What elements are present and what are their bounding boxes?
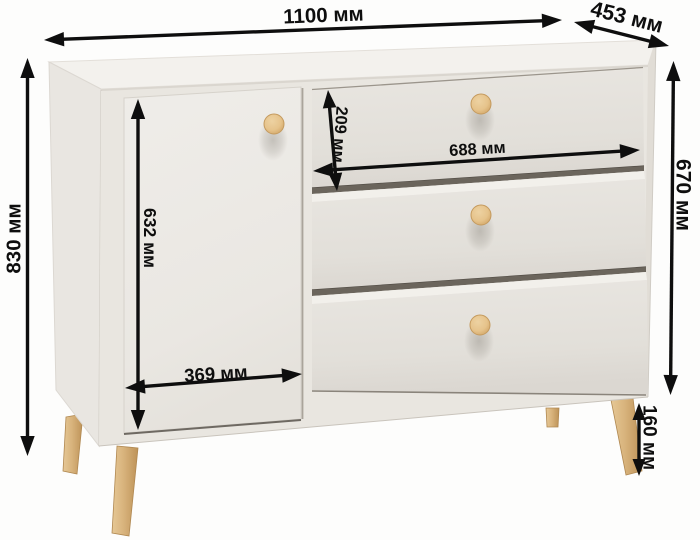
svg-text:160 мм: 160 мм <box>638 405 659 470</box>
svg-text:632 мм: 632 мм <box>140 208 160 268</box>
svg-text:830 мм: 830 мм <box>2 203 25 273</box>
svg-text:369 мм: 369 мм <box>184 361 249 386</box>
svg-text:670 мм: 670 мм <box>671 159 694 231</box>
svg-text:1100 мм: 1100 мм <box>283 2 364 28</box>
svg-text:688 мм: 688 мм <box>449 139 507 160</box>
